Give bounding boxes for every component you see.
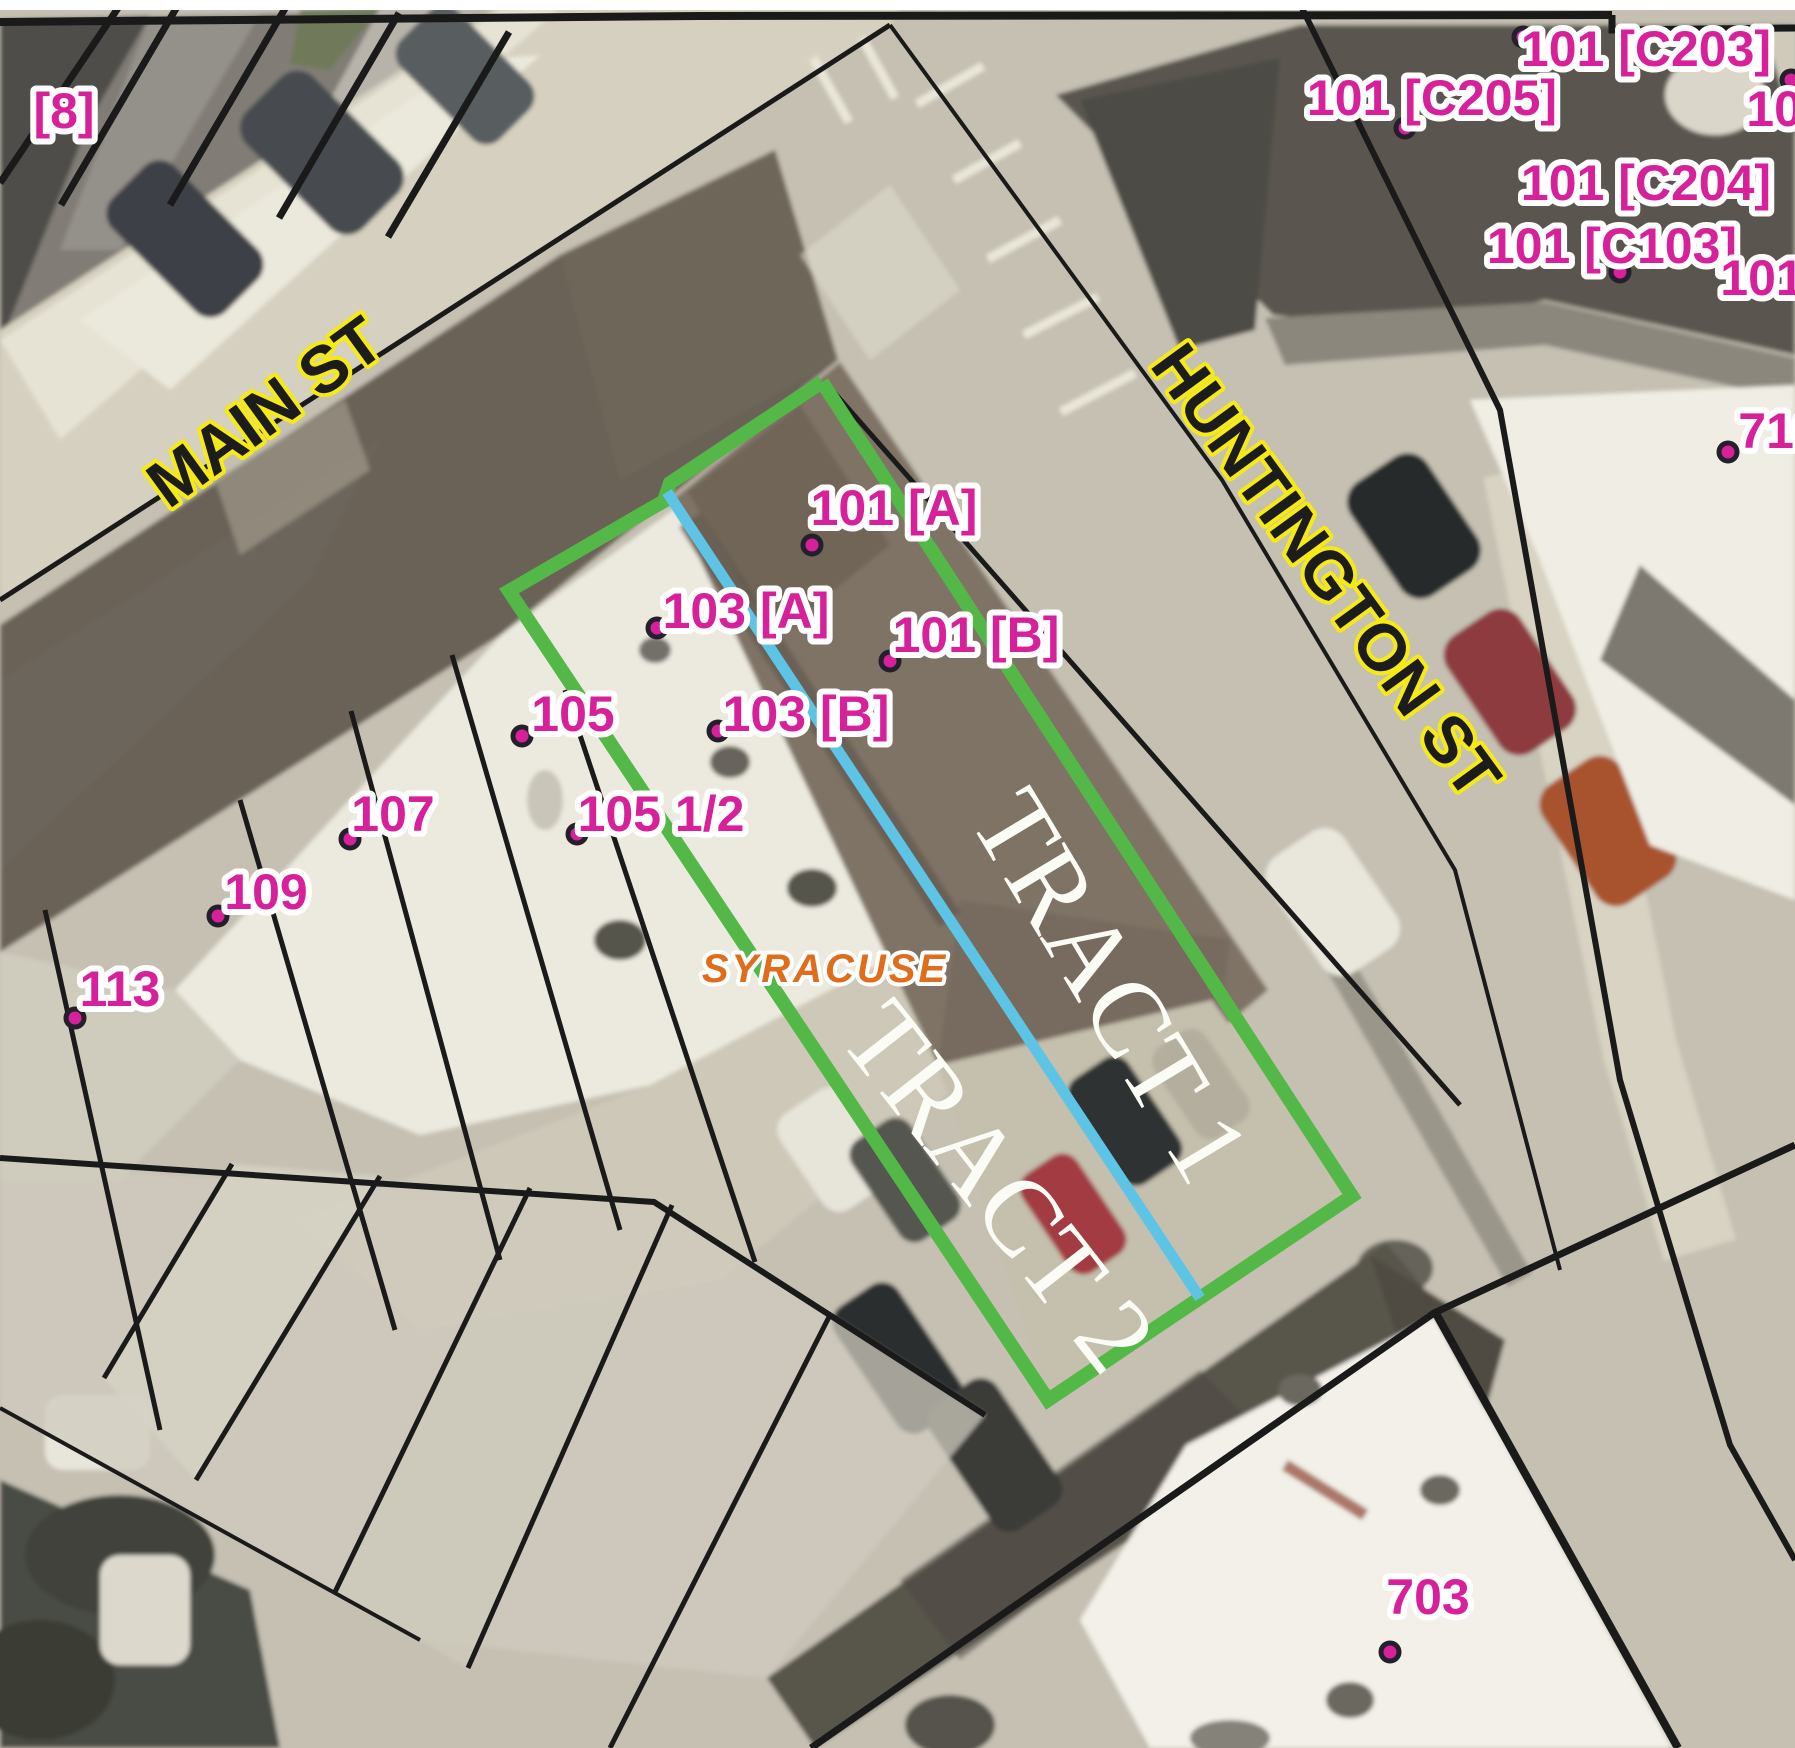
svg-text:SYRACUSE: SYRACUSE bbox=[702, 947, 948, 991]
svg-text:[8]: [8] bbox=[33, 83, 94, 139]
svg-text:101: 101 bbox=[1746, 81, 1795, 137]
svg-text:101 [C103]: 101 [C103] bbox=[1487, 218, 1737, 274]
svg-text:103 [A]: 103 [A] bbox=[663, 583, 830, 639]
svg-text:101 [C204]: 101 [C204] bbox=[1521, 155, 1771, 211]
svg-text:703: 703 bbox=[1386, 1569, 1469, 1625]
svg-text:716: 716 bbox=[1738, 403, 1795, 459]
svg-text:109: 109 bbox=[224, 864, 307, 920]
svg-text:107: 107 bbox=[351, 786, 434, 842]
svg-text:101 [C205]: 101 [C205] bbox=[1307, 70, 1557, 126]
svg-text:105: 105 bbox=[531, 686, 614, 742]
svg-text:101 [B]: 101 [B] bbox=[893, 607, 1060, 663]
svg-text:101 [C203]: 101 [C203] bbox=[1521, 21, 1771, 77]
svg-text:101 [A]: 101 [A] bbox=[811, 480, 978, 536]
svg-text:101: 101 bbox=[1720, 250, 1795, 306]
svg-text:113: 113 bbox=[80, 961, 161, 1017]
svg-text:105 1/2: 105 1/2 bbox=[578, 786, 745, 842]
svg-text:103 [B]: 103 [B] bbox=[723, 686, 890, 742]
